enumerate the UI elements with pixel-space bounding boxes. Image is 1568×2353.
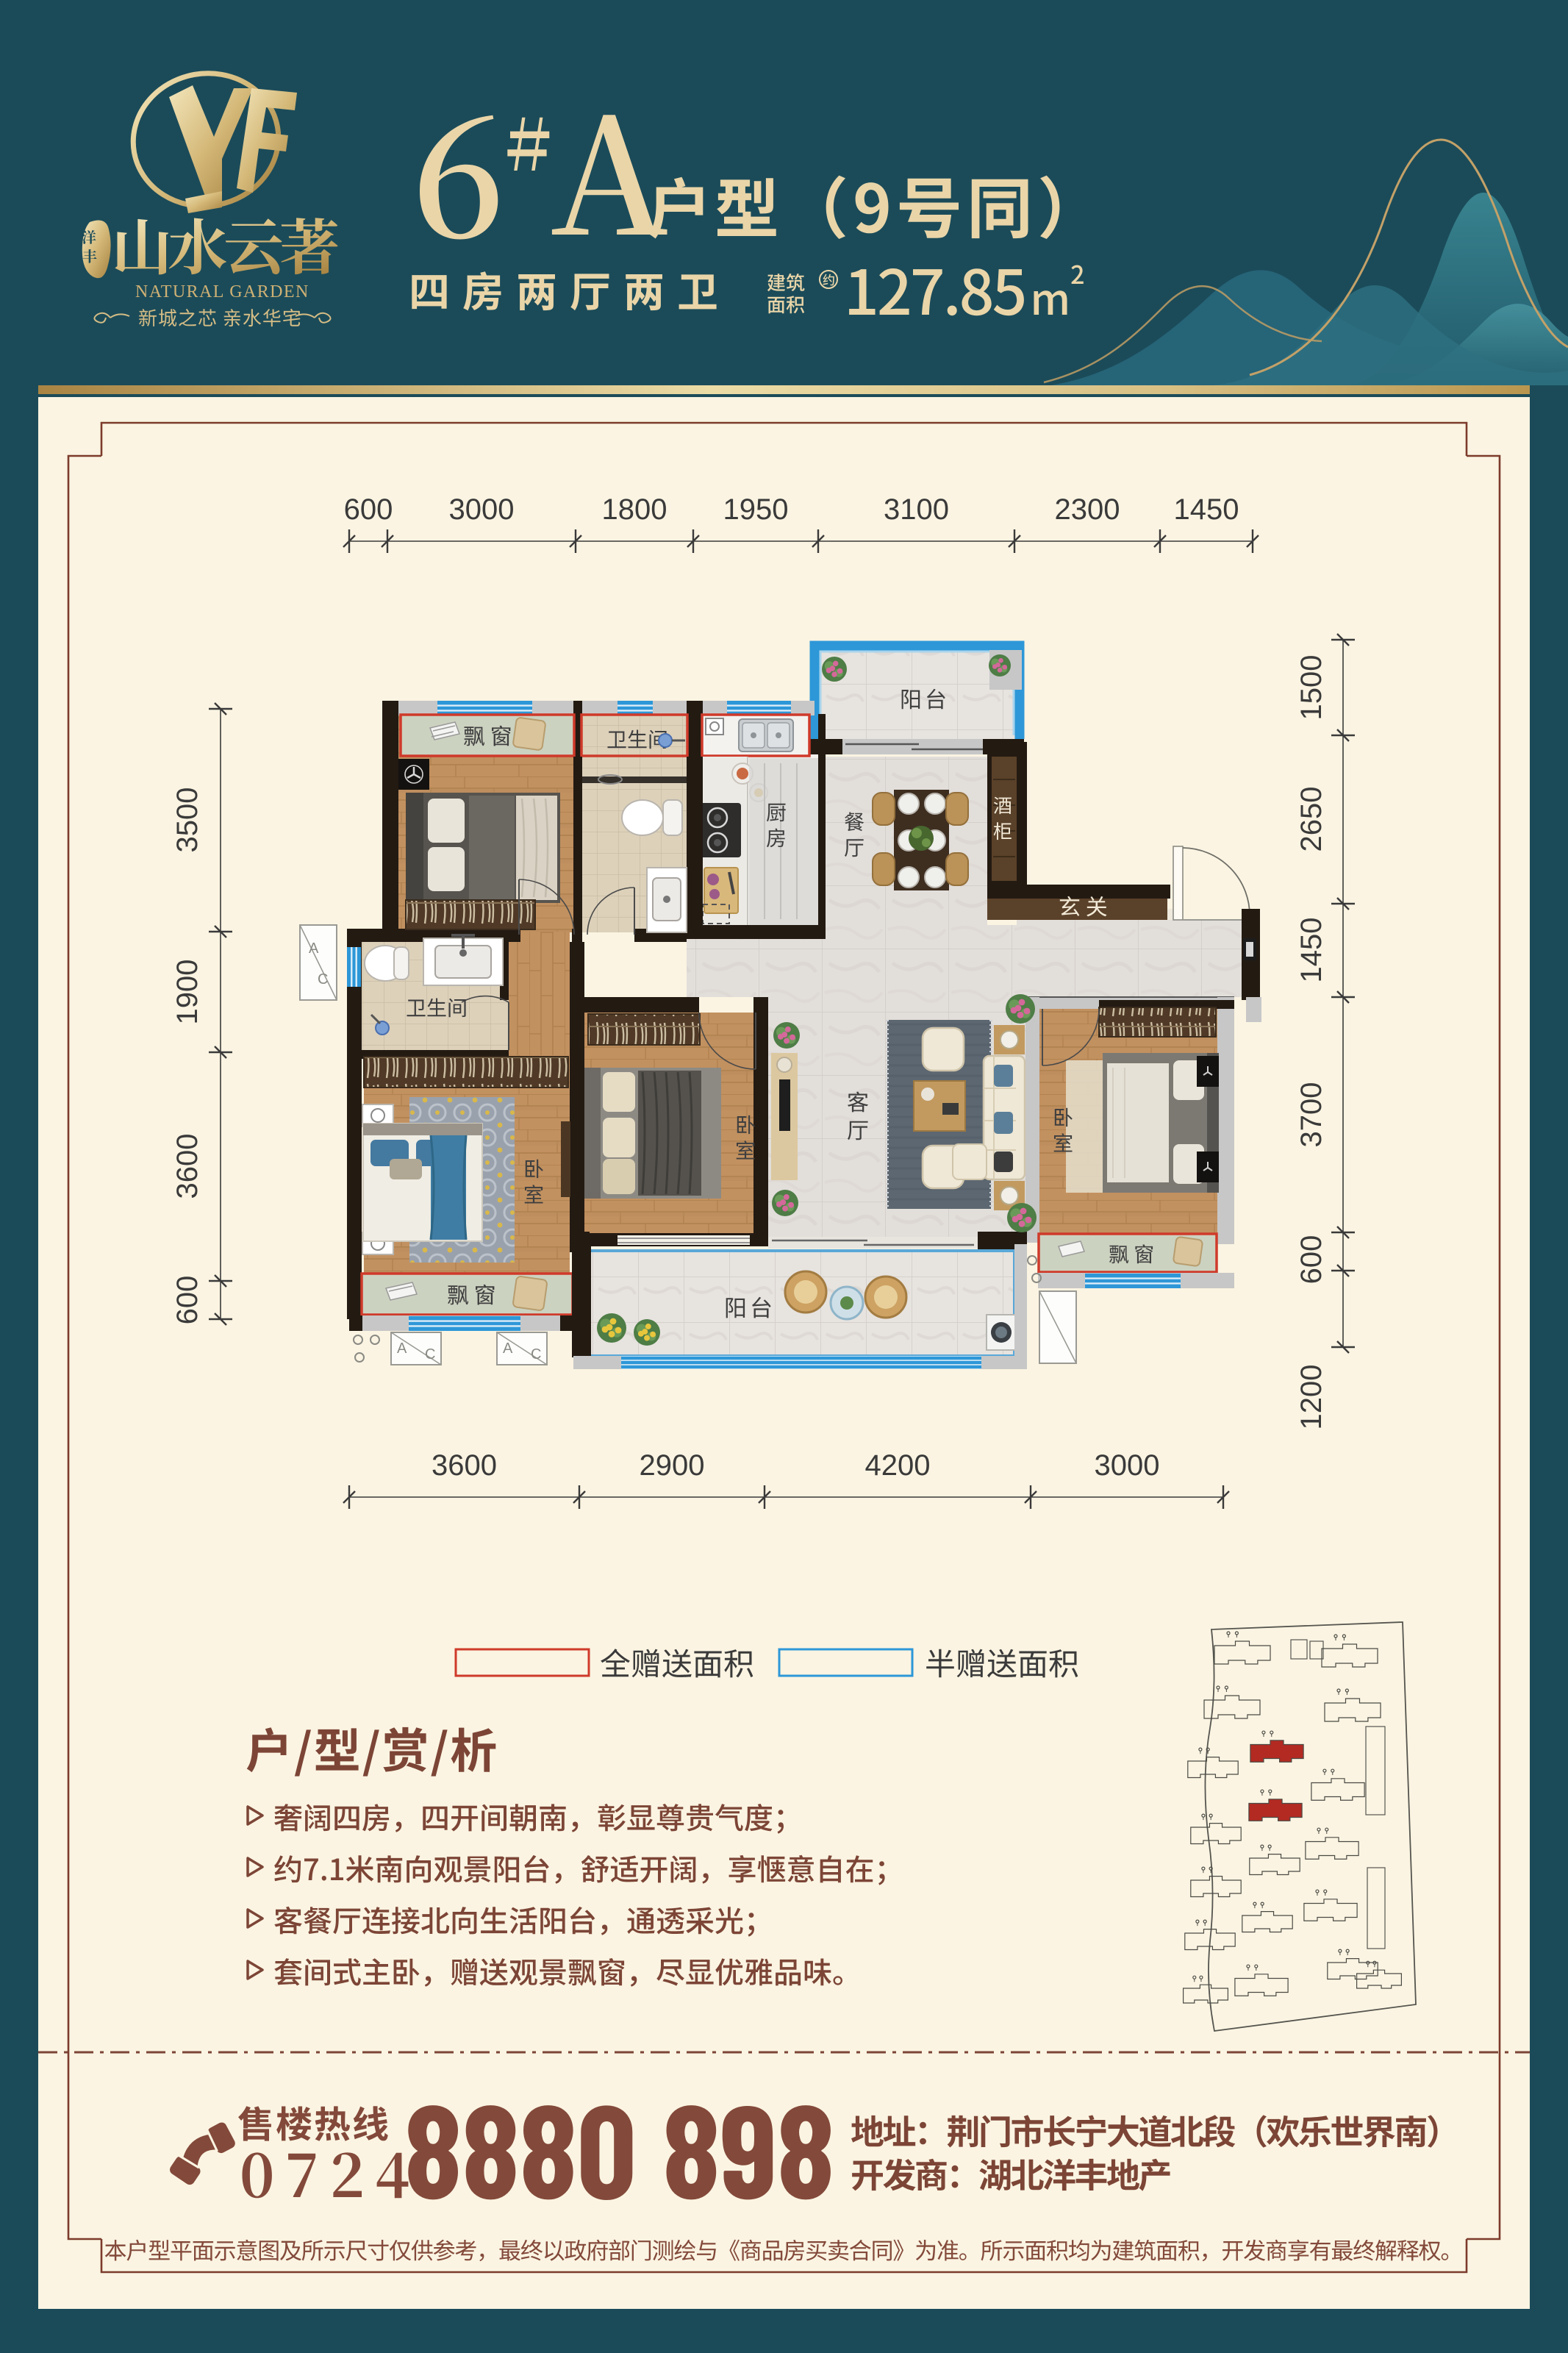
svg-text:3600: 3600 bbox=[171, 1134, 204, 1199]
svg-text:4200: 4200 bbox=[865, 1449, 931, 1482]
svg-text:1500: 1500 bbox=[1295, 655, 1328, 721]
svg-text:2650: 2650 bbox=[1295, 787, 1328, 852]
svg-text:3000: 3000 bbox=[449, 493, 515, 526]
svg-text:A: A bbox=[503, 1340, 513, 1357]
svg-text:3600: 3600 bbox=[432, 1449, 497, 1482]
svg-text:C: C bbox=[531, 1346, 541, 1363]
svg-text:1450: 1450 bbox=[1295, 918, 1328, 983]
svg-text:3500: 3500 bbox=[171, 788, 204, 853]
svg-text:C: C bbox=[318, 971, 328, 988]
svg-text:2900: 2900 bbox=[640, 1449, 705, 1482]
svg-text:C: C bbox=[425, 1346, 435, 1363]
svg-text:600: 600 bbox=[171, 1276, 204, 1325]
svg-text:1200: 1200 bbox=[1295, 1365, 1328, 1430]
svg-text:600: 600 bbox=[1295, 1235, 1328, 1285]
svg-text:1950: 1950 bbox=[723, 493, 789, 526]
svg-text:A: A bbox=[397, 1340, 407, 1357]
svg-text:1800: 1800 bbox=[602, 493, 667, 526]
svg-text:A: A bbox=[309, 940, 319, 957]
svg-text:1450: 1450 bbox=[1174, 493, 1239, 526]
svg-text:NATURAL GARDEN: NATURAL GARDEN bbox=[135, 282, 309, 301]
svg-text:1900: 1900 bbox=[171, 960, 204, 1025]
svg-text:3100: 3100 bbox=[884, 493, 949, 526]
svg-text:2300: 2300 bbox=[1055, 493, 1120, 526]
svg-text:3000: 3000 bbox=[1095, 1449, 1160, 1482]
svg-text:3700: 3700 bbox=[1295, 1082, 1328, 1148]
svg-text:600: 600 bbox=[344, 493, 393, 526]
